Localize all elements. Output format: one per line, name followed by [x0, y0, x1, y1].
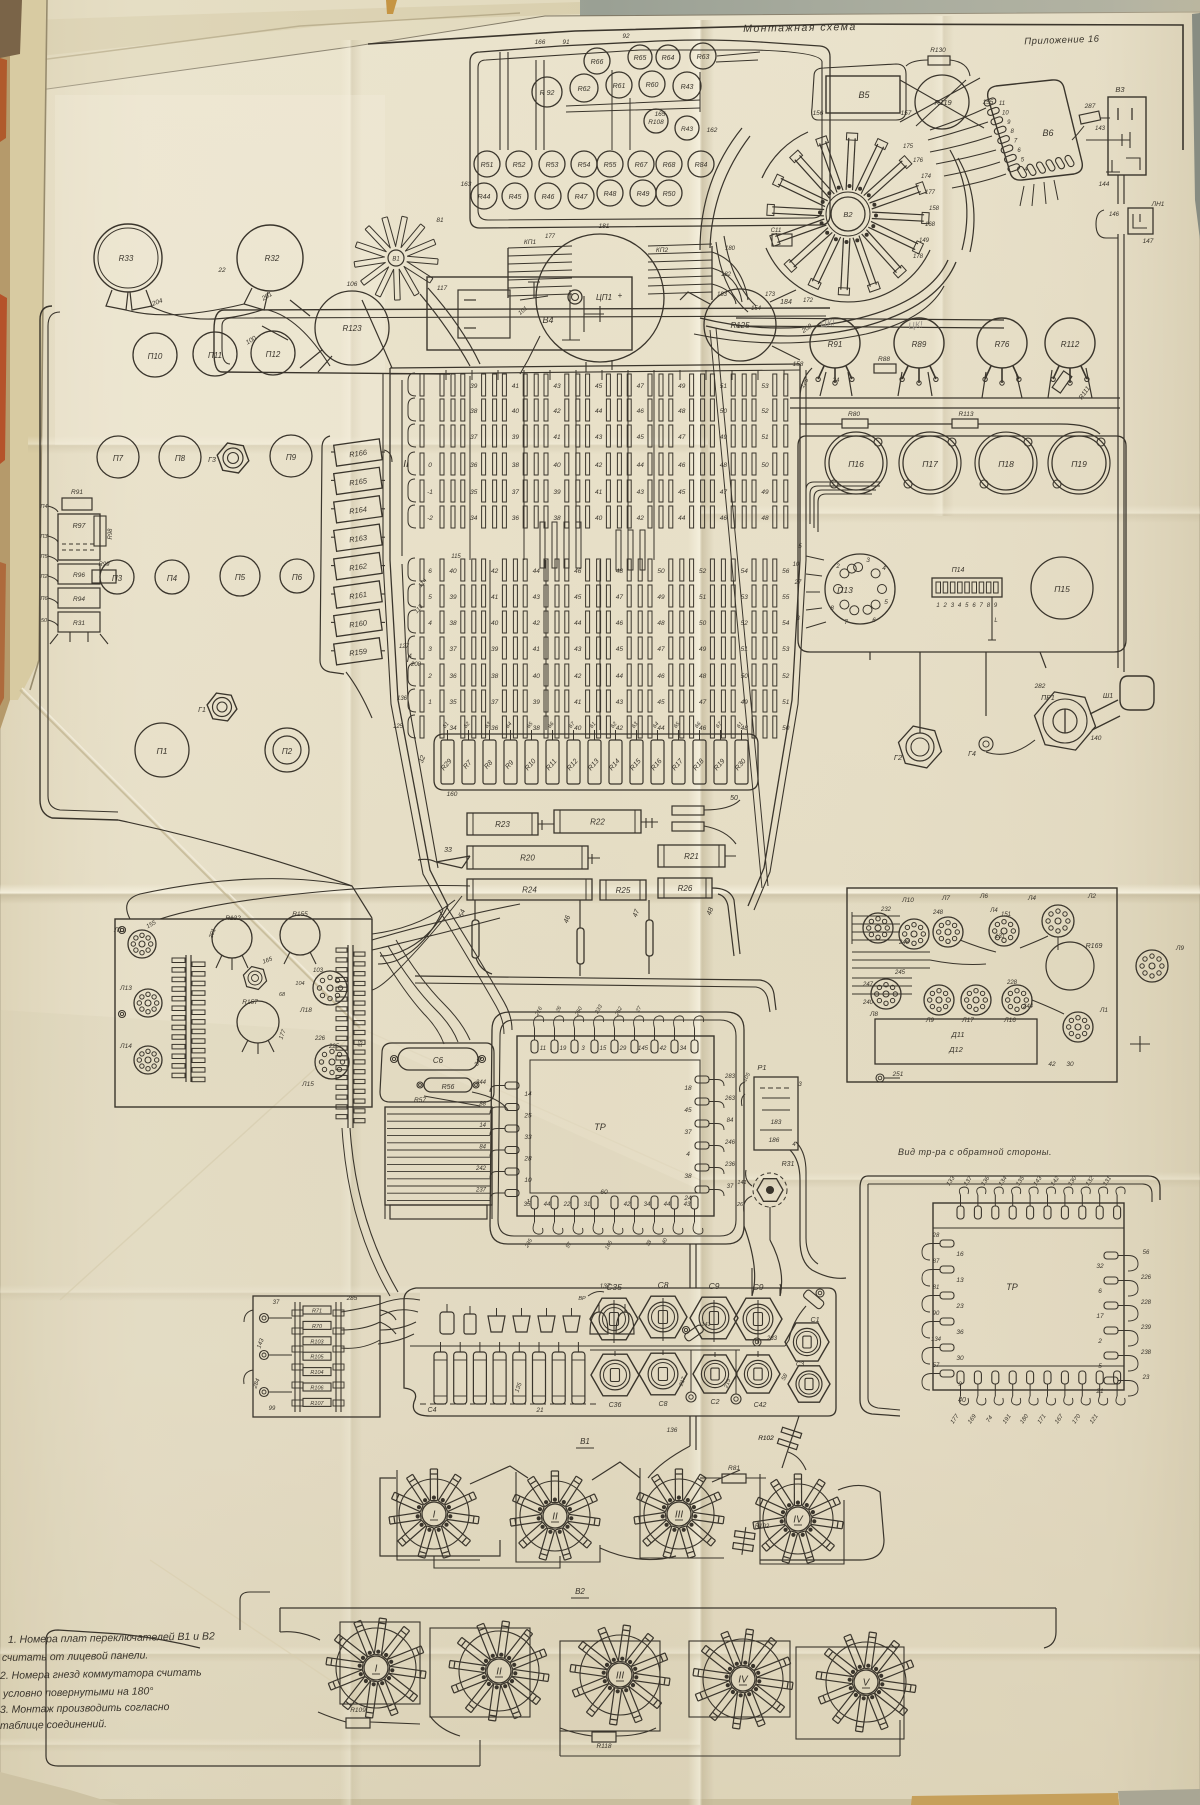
svg-text:49: 49: [699, 646, 707, 653]
svg-text:5: 5: [884, 599, 888, 606]
svg-text:Г1: Г1: [198, 707, 206, 714]
svg-text:84: 84: [727, 1118, 734, 1124]
svg-text:33: 33: [524, 1134, 532, 1141]
svg-text:ПР1: ПР1: [1041, 695, 1055, 702]
svg-text:42: 42: [595, 462, 603, 469]
svg-text:13: 13: [956, 1277, 964, 1284]
svg-text:233: 233: [766, 1336, 778, 1342]
svg-text:145: 145: [638, 1046, 649, 1052]
svg-text:43: 43: [595, 434, 603, 441]
svg-text:37: 37: [684, 1129, 692, 1136]
svg-text:37: 37: [273, 1300, 280, 1306]
svg-text:КП1: КП1: [524, 239, 537, 246]
svg-text:R96: R96: [73, 572, 85, 579]
svg-text:44: 44: [637, 462, 645, 469]
svg-text:48: 48: [657, 620, 665, 627]
svg-text:R109: R109: [350, 1707, 366, 1714]
svg-text:125: 125: [393, 724, 404, 730]
svg-text:28: 28: [932, 1233, 940, 1239]
svg-text:R99: R99: [98, 562, 110, 568]
svg-text:R24: R24: [522, 886, 537, 895]
svg-text:177: 177: [545, 234, 556, 240]
svg-text:151: 151: [1001, 912, 1011, 918]
svg-text:136: 136: [397, 696, 408, 702]
svg-text:17: 17: [1096, 1313, 1104, 1320]
svg-text:22: 22: [563, 1202, 571, 1208]
svg-text:47: 47: [657, 646, 665, 653]
svg-text:П17: П17: [922, 459, 938, 469]
svg-text:R102: R102: [758, 1435, 774, 1442]
svg-text:176: 176: [913, 158, 924, 164]
svg-text:47: 47: [616, 594, 624, 601]
svg-text:П8: П8: [175, 454, 186, 463]
svg-text:R105: R105: [310, 1355, 324, 1361]
svg-text:30: 30: [1066, 1061, 1074, 1068]
svg-text:R63: R63: [697, 54, 710, 61]
svg-text:178: 178: [913, 254, 924, 260]
svg-text:В2: В2: [843, 210, 853, 219]
svg-text:ЦП1: ЦП1: [596, 293, 612, 302]
svg-text:42: 42: [574, 673, 582, 680]
svg-text:52: 52: [761, 408, 769, 415]
svg-text:53: 53: [782, 646, 790, 653]
svg-text:ЦК!: ЦК!: [820, 317, 836, 329]
svg-text:R55: R55: [604, 162, 617, 169]
svg-text:П4: П4: [40, 504, 47, 510]
svg-text:44: 44: [533, 568, 541, 575]
svg-text:47: 47: [699, 699, 707, 706]
svg-text:Л15: Л15: [301, 1081, 314, 1088]
svg-text:34: 34: [644, 1202, 651, 1208]
svg-text:5: 5: [1098, 1363, 1102, 1370]
svg-text:IV: IV: [738, 1675, 749, 1686]
svg-text:43: 43: [574, 646, 582, 653]
svg-text:Л9: Л9: [1175, 945, 1184, 952]
svg-text:КП2: КП2: [656, 247, 669, 254]
svg-text:П19: П19: [1071, 459, 1087, 469]
svg-text:35: 35: [449, 699, 457, 706]
svg-text:считать от лицевой панели.: считать от лицевой панели.: [2, 1649, 149, 1664]
svg-text:С8: С8: [658, 1280, 669, 1290]
svg-text:31: 31: [584, 1202, 591, 1208]
svg-text:R81: R81: [728, 1465, 740, 1472]
svg-text:R91: R91: [71, 489, 83, 496]
svg-text:10: 10: [1002, 110, 1009, 116]
svg-text:36: 36: [491, 725, 499, 732]
svg-text:283: 283: [724, 1074, 736, 1080]
svg-text:Монтажная схема: Монтажная схема: [743, 21, 857, 35]
svg-text:50: 50: [782, 725, 790, 732]
svg-text:23: 23: [955, 1303, 964, 1310]
svg-text:163: 163: [461, 181, 472, 188]
svg-text:46: 46: [574, 568, 582, 575]
svg-text:2: 2: [427, 673, 432, 680]
svg-text:228: 228: [1140, 1300, 1152, 1306]
svg-text:263: 263: [724, 1096, 736, 1102]
svg-text:99: 99: [269, 1406, 276, 1412]
svg-text:81: 81: [436, 217, 444, 224]
svg-text:208: 208: [410, 662, 422, 668]
svg-text:R60: R60: [646, 82, 659, 89]
svg-text:37: 37: [449, 646, 457, 653]
svg-text:1: 1: [428, 699, 432, 706]
svg-text:С36: С36: [609, 1402, 622, 1409]
svg-text:37: 37: [512, 489, 520, 496]
svg-text:43: 43: [533, 594, 541, 601]
svg-text:R169: R169: [1086, 943, 1103, 950]
svg-text:39: 39: [512, 434, 520, 441]
svg-text:28: 28: [523, 1156, 532, 1163]
svg-text:147: 147: [1143, 238, 1154, 245]
svg-text:49: 49: [761, 489, 769, 496]
svg-text:С35: С35: [606, 1282, 622, 1292]
svg-text:R66: R66: [591, 59, 604, 66]
svg-text:С9: С9: [709, 1281, 720, 1291]
svg-text:44: 44: [574, 620, 582, 627]
svg-text:R104: R104: [310, 1370, 323, 1376]
svg-text:С42: С42: [754, 1402, 767, 1409]
svg-text:ТР: ТР: [1006, 1282, 1018, 1292]
svg-text:С9: С9: [753, 1282, 764, 1292]
svg-text:50: 50: [41, 618, 48, 624]
svg-text:162: 162: [707, 127, 718, 134]
svg-text:R32: R32: [265, 254, 280, 263]
svg-text:С8: С8: [659, 1401, 668, 1408]
svg-text:32: 32: [1096, 1263, 1104, 1270]
svg-text:Л7: Л7: [941, 895, 950, 902]
svg-text:34: 34: [449, 725, 457, 732]
svg-text:144: 144: [1099, 181, 1110, 188]
svg-text:R102: R102: [755, 1524, 770, 1530]
svg-text:248: 248: [898, 940, 910, 946]
svg-text:Д11: Д11: [950, 1030, 964, 1039]
svg-text:49: 49: [678, 383, 686, 390]
svg-text:II: II: [552, 1512, 558, 1523]
svg-text:Л16: Л16: [1003, 1017, 1016, 1024]
svg-text:I: I: [433, 1510, 436, 1521]
svg-text:34: 34: [680, 1046, 687, 1052]
svg-text:42: 42: [637, 515, 645, 522]
svg-text:14: 14: [479, 1123, 486, 1129]
svg-text:R52: R52: [513, 162, 526, 169]
svg-text:R103: R103: [310, 1339, 324, 1345]
svg-text:181: 181: [599, 223, 610, 230]
svg-text:R 92: R 92: [540, 90, 555, 97]
svg-text:Л6: Л6: [979, 893, 988, 900]
svg-text:R108: R108: [648, 119, 664, 126]
svg-text:R31: R31: [782, 1161, 795, 1168]
svg-text:R97: R97: [73, 523, 87, 530]
svg-text:R112: R112: [1061, 340, 1080, 349]
svg-text:R44: R44: [478, 194, 491, 201]
svg-text:104: 104: [295, 981, 304, 987]
svg-text:44: 44: [595, 408, 603, 415]
svg-text:R71: R71: [312, 1309, 322, 1315]
svg-text:R157: R157: [242, 999, 258, 1006]
svg-text:42: 42: [660, 1046, 667, 1052]
svg-text:Л2: Л2: [1087, 893, 1096, 900]
svg-text:60: 60: [600, 1189, 608, 1196]
svg-text:2: 2: [835, 564, 840, 570]
svg-text:41: 41: [491, 594, 499, 601]
svg-text:40: 40: [595, 515, 603, 522]
svg-text:I: I: [375, 1664, 378, 1675]
svg-text:186: 186: [769, 1137, 780, 1144]
svg-text:22: 22: [217, 267, 226, 274]
svg-text:239: 239: [1140, 1325, 1152, 1331]
svg-text:51: 51: [761, 434, 769, 441]
svg-text:R64: R64: [662, 55, 675, 62]
svg-text:R62: R62: [578, 86, 591, 93]
svg-text:51: 51: [782, 699, 790, 706]
svg-text:36: 36: [956, 1329, 964, 1336]
svg-text:15: 15: [600, 1046, 607, 1052]
svg-text:38: 38: [533, 725, 541, 732]
svg-text:40: 40: [533, 673, 541, 680]
svg-text:III: III: [616, 1671, 625, 1682]
svg-text:56: 56: [782, 568, 790, 575]
svg-text:В1: В1: [392, 257, 399, 263]
svg-text:38: 38: [684, 1173, 692, 1180]
svg-text:68: 68: [279, 992, 286, 998]
svg-text:54: 54: [782, 620, 790, 627]
svg-text:R46: R46: [542, 194, 555, 201]
svg-text:R119: R119: [934, 98, 952, 107]
svg-text:П7: П7: [113, 454, 124, 463]
svg-text:ЦК!: ЦК!: [908, 319, 924, 331]
svg-text:156: 156: [813, 110, 824, 117]
svg-text:R84: R84: [695, 162, 708, 169]
svg-text:91: 91: [562, 39, 570, 46]
svg-text:42: 42: [624, 1202, 631, 1208]
svg-text:172: 172: [803, 298, 814, 304]
svg-text:Л4: Л4: [989, 908, 998, 914]
svg-text:R50: R50: [663, 191, 676, 198]
svg-text:47: 47: [678, 434, 686, 441]
svg-text:246: 246: [724, 1140, 736, 1146]
svg-text:134: 134: [931, 1337, 942, 1343]
svg-text:48: 48: [761, 515, 769, 522]
svg-text:33: 33: [444, 847, 452, 854]
svg-text:43: 43: [553, 383, 561, 390]
svg-text:В5: В5: [858, 90, 870, 100]
svg-text:57: 57: [933, 1363, 940, 1369]
svg-text:50: 50: [730, 795, 738, 802]
svg-text:183: 183: [717, 292, 728, 298]
svg-text:С3: С3: [796, 1361, 805, 1368]
svg-text:R61: R61: [613, 83, 626, 90]
svg-text:R123: R123: [342, 324, 362, 333]
svg-text:44: 44: [664, 1202, 671, 1208]
svg-text:П5: П5: [40, 554, 48, 560]
svg-text:11: 11: [999, 101, 1005, 107]
svg-text:37: 37: [470, 434, 478, 441]
svg-text:149: 149: [919, 238, 930, 244]
svg-text:С2: С2: [711, 1399, 720, 1406]
svg-text:R48: R48: [604, 191, 617, 198]
svg-text:287: 287: [1084, 103, 1096, 110]
svg-text:10: 10: [793, 562, 800, 568]
svg-text:251: 251: [892, 1071, 904, 1078]
svg-text:40: 40: [553, 462, 561, 469]
svg-text:R80: R80: [848, 411, 860, 418]
svg-text:Л14: Л14: [119, 1043, 132, 1050]
svg-text:242: 242: [475, 1166, 487, 1172]
svg-text:В4: В4: [542, 315, 553, 325]
svg-text:166: 166: [535, 39, 546, 46]
svg-text:45: 45: [595, 383, 603, 390]
svg-text:127: 127: [399, 644, 410, 650]
svg-text:R94: R94: [73, 596, 85, 603]
svg-text:24: 24: [832, 378, 840, 384]
svg-text:38: 38: [491, 673, 499, 680]
svg-text:38: 38: [470, 408, 478, 415]
svg-text:39: 39: [470, 383, 478, 390]
svg-text:236: 236: [724, 1162, 736, 1168]
svg-text:45: 45: [678, 489, 686, 496]
svg-text:30: 30: [956, 1355, 964, 1362]
svg-text:168: 168: [925, 222, 936, 228]
svg-text:40: 40: [512, 408, 520, 415]
svg-text:48: 48: [616, 568, 624, 575]
svg-text:П15: П15: [1054, 584, 1070, 594]
svg-text:39: 39: [449, 594, 457, 601]
svg-text:117: 117: [437, 285, 448, 292]
svg-text:87: 87: [933, 1259, 940, 1265]
svg-text:46: 46: [678, 462, 686, 469]
svg-text:158: 158: [929, 206, 940, 212]
svg-text:R45: R45: [509, 194, 522, 201]
svg-text:С11: С11: [771, 228, 782, 234]
svg-text:Р1: Р1: [757, 1063, 766, 1072]
svg-text:226: 226: [314, 1036, 326, 1042]
svg-text:40: 40: [491, 620, 499, 627]
svg-text:50: 50: [761, 462, 769, 469]
svg-text:R68: R68: [663, 162, 676, 169]
svg-text:225: 225: [328, 1044, 340, 1050]
svg-text:R57: R57: [414, 1097, 426, 1104]
svg-text:R130: R130: [930, 47, 946, 54]
svg-text:ЛН1: ЛН1: [1151, 201, 1165, 208]
svg-text:53: 53: [761, 383, 769, 390]
svg-text:39: 39: [533, 699, 541, 706]
svg-text:П16: П16: [848, 459, 864, 469]
svg-text:R31: R31: [73, 620, 85, 627]
svg-text:41: 41: [574, 699, 582, 706]
svg-text:245: 245: [894, 970, 906, 976]
svg-text:ТР: ТР: [594, 1122, 606, 1132]
svg-text:44: 44: [678, 515, 686, 522]
svg-text:52: 52: [741, 620, 749, 627]
svg-text:R25: R25: [616, 886, 631, 895]
svg-text:0: 0: [428, 462, 432, 469]
svg-text:36: 36: [449, 673, 457, 680]
svg-text:III: III: [675, 1510, 684, 1521]
svg-text:3: 3: [428, 646, 432, 653]
svg-text:92: 92: [622, 33, 630, 40]
svg-text:R49: R49: [637, 191, 650, 198]
svg-text:В6: В6: [1042, 128, 1053, 138]
svg-text:106: 106: [347, 281, 358, 288]
svg-text:37: 37: [491, 699, 499, 706]
svg-text:П4: П4: [167, 574, 178, 583]
svg-text:38: 38: [449, 620, 457, 627]
svg-text:46: 46: [720, 515, 728, 522]
svg-text:П2: П2: [40, 574, 47, 580]
svg-text:П5: П5: [235, 573, 246, 582]
svg-text:35: 35: [524, 1202, 531, 1208]
svg-text:45: 45: [616, 646, 624, 653]
svg-text:51: 51: [699, 594, 707, 601]
svg-text:R91: R91: [828, 340, 843, 349]
svg-text:42: 42: [533, 620, 541, 627]
svg-text:237: 237: [475, 1188, 487, 1194]
svg-text:8: 8: [830, 605, 834, 612]
svg-text:II: II: [496, 1667, 502, 1678]
svg-text:141: 141: [701, 1322, 710, 1328]
svg-text:41: 41: [595, 489, 603, 496]
svg-text:Л1: Л1: [1099, 1007, 1108, 1014]
svg-text:16: 16: [956, 1251, 964, 1258]
svg-text:84: 84: [479, 1145, 486, 1151]
svg-text:ПЗ: ПЗ: [40, 534, 48, 540]
svg-text:В1: В1: [580, 1437, 590, 1446]
svg-text:240: 240: [862, 1000, 874, 1006]
svg-text:39: 39: [491, 646, 499, 653]
svg-text:177: 177: [925, 190, 936, 196]
svg-text:141: 141: [737, 1180, 746, 1186]
svg-text:140: 140: [1091, 735, 1102, 742]
svg-text:R56: R56: [442, 1084, 455, 1091]
svg-text:36: 36: [512, 515, 520, 522]
svg-text:41: 41: [512, 383, 520, 390]
svg-text:Л18: Л18: [299, 1007, 312, 1014]
svg-text:14: 14: [524, 1091, 532, 1098]
svg-text:5: 5: [428, 594, 432, 601]
svg-text:143: 143: [1095, 126, 1106, 132]
svg-text:36: 36: [470, 462, 478, 469]
svg-text:R53: R53: [546, 162, 559, 169]
svg-text:48: 48: [678, 408, 686, 415]
svg-text:R54: R54: [578, 162, 591, 169]
svg-text:Ш1: Ш1: [1103, 693, 1113, 700]
svg-text:43: 43: [637, 489, 645, 496]
svg-text:51: 51: [741, 646, 749, 653]
svg-text:П1: П1: [157, 746, 168, 756]
svg-text:П18: П18: [998, 459, 1014, 469]
svg-text:4: 4: [686, 1151, 690, 1158]
svg-text:47: 47: [637, 383, 645, 390]
svg-text:Г3: Г3: [208, 457, 216, 464]
svg-text:183: 183: [771, 1119, 782, 1126]
svg-text:27: 27: [794, 580, 802, 586]
svg-text:154: 154: [751, 306, 762, 312]
svg-text:42: 42: [1048, 1061, 1056, 1068]
svg-text:160: 160: [447, 791, 458, 798]
svg-text:П2: П2: [282, 747, 293, 756]
svg-text:R107: R107: [310, 1401, 324, 1407]
svg-text:25: 25: [523, 1113, 532, 1120]
svg-text:136: 136: [667, 1427, 678, 1434]
svg-text:26: 26: [736, 1202, 744, 1208]
svg-text:244: 244: [1022, 1004, 1034, 1010]
svg-text:-1: -1: [427, 489, 433, 496]
svg-text:46: 46: [616, 620, 624, 627]
svg-text:R65: R65: [634, 55, 647, 62]
svg-text:35: 35: [470, 489, 478, 496]
svg-text:90: 90: [933, 1311, 940, 1317]
svg-text:6: 6: [428, 568, 432, 575]
